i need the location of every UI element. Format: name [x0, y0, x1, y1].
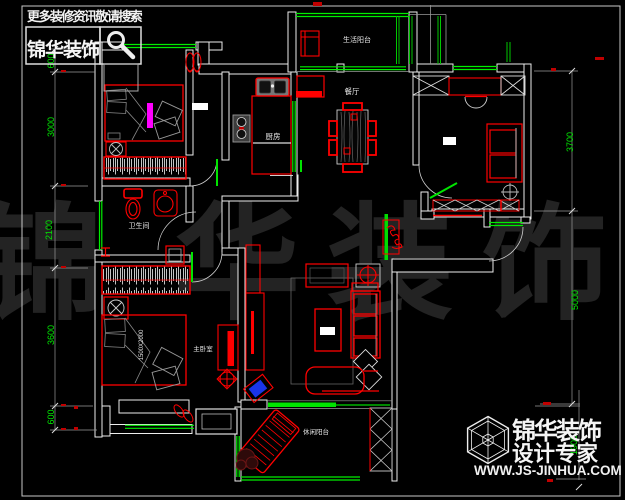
svg-text:更多装修资讯敬请搜索: 更多装修资讯敬请搜索: [27, 9, 143, 24]
svg-text:2100: 2100: [44, 220, 54, 240]
svg-text:600: 600: [46, 409, 56, 424]
svg-text:WWW.JS-JINHUA.COM: WWW.JS-JINHUA.COM: [474, 463, 622, 478]
svg-text:餐厅: 餐厅: [345, 87, 360, 96]
svg-text:3000: 3000: [46, 117, 56, 137]
svg-text:生活阳台: 生活阳台: [343, 35, 371, 44]
svg-text:厨房: 厨房: [266, 131, 281, 141]
svg-text:休闲阳台: 休闲阳台: [303, 427, 329, 436]
svg-text:3700: 3700: [565, 132, 575, 152]
svg-text:1500X2000: 1500X2000: [139, 329, 145, 360]
svg-text:5000: 5000: [570, 290, 580, 310]
svg-text:卫生间: 卫生间: [129, 221, 150, 230]
svg-text:主卧室: 主卧室: [193, 344, 213, 353]
svg-text:锦华装饰: 锦华装饰: [512, 417, 602, 445]
svg-text:锦华装饰: 锦华装饰: [27, 38, 100, 61]
svg-text:3600: 3600: [46, 325, 56, 345]
svg-text:锦: 锦: [0, 194, 105, 335]
